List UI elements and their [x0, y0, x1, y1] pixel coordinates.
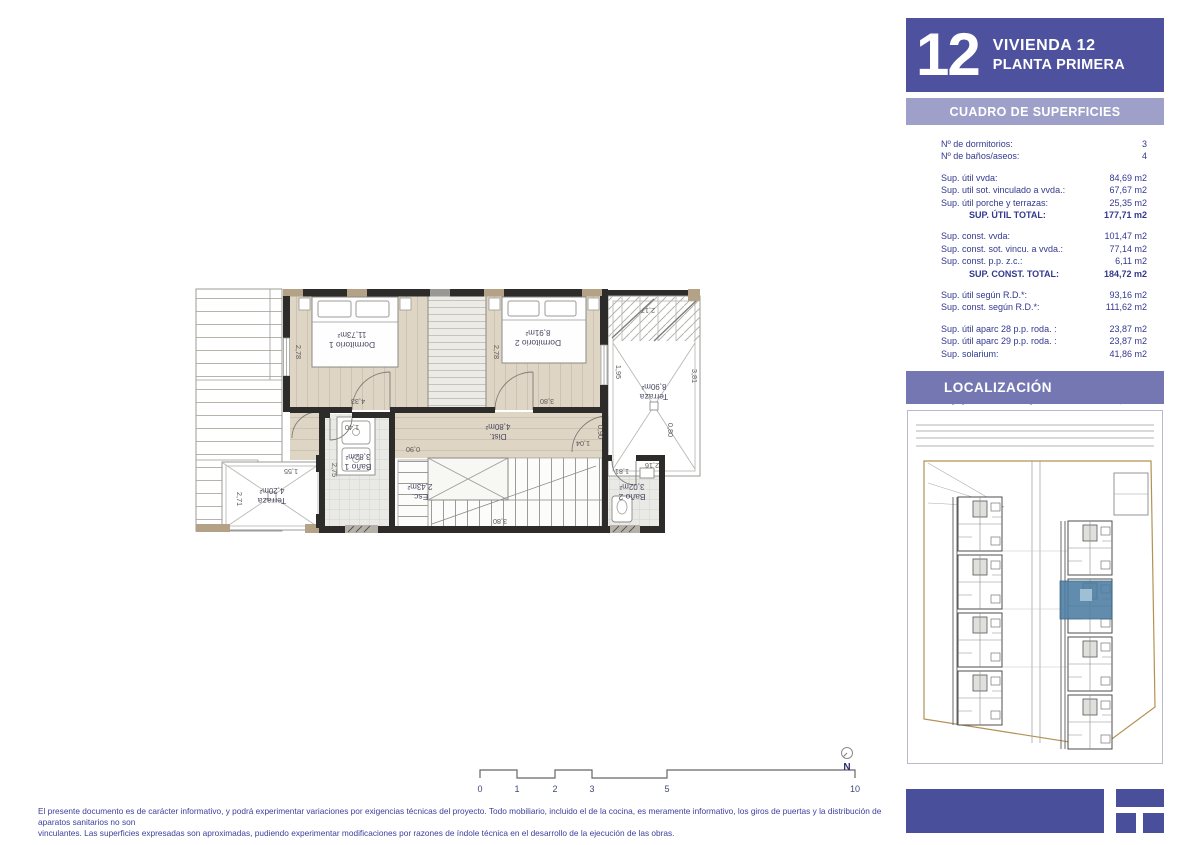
dim-label: 3,80: [493, 517, 507, 526]
svg-text:3,82m²: 3,82m²: [345, 452, 370, 461]
table-row: Sup. útil vvda:84,69 m2: [941, 172, 1147, 184]
unit-header: 12 VIVIENDA 12 PLANTA PRIMERA: [906, 18, 1164, 92]
svg-text:Dormitorio 1: Dormitorio 1: [329, 340, 376, 350]
dim-label: 2,71: [235, 492, 244, 506]
floor-title: PLANTA PRIMERA: [993, 57, 1125, 73]
table-row: Sup. const. vvda:101,47 m2: [941, 230, 1147, 242]
dim-label: 2,78: [492, 345, 501, 359]
svg-text:Terraza: Terraza: [640, 392, 669, 402]
north-icon: N: [835, 742, 861, 778]
dim-label: 0,90: [406, 445, 420, 454]
table-group: Sup. útil aparc 28 p.p. roda. :23,87 m2 …: [941, 323, 1147, 360]
table-row: Nº de baños/aseos:4: [941, 150, 1147, 162]
dim-label: 1,40: [345, 423, 359, 432]
scale-tick-label: 0: [477, 784, 482, 794]
svg-text:4,80m²: 4,80m²: [485, 422, 510, 431]
svg-text:11,73m²: 11,73m²: [337, 330, 366, 339]
unit-title: VIVIENDA 12: [993, 37, 1125, 55]
garage-strip: [950, 497, 958, 725]
svg-text:8,91m²: 8,91m²: [525, 328, 550, 337]
company-logo: [906, 789, 1164, 834]
svg-text:4,20m²: 4,20m²: [259, 486, 284, 495]
svg-text:Esc.: Esc.: [412, 492, 429, 502]
svg-text:Dormitorio 2: Dormitorio 2: [515, 338, 562, 348]
scale-tick-label: 5: [664, 784, 669, 794]
dim-label: 2,17: [641, 306, 655, 315]
table-row: Sup. útil aparc 28 p.p. roda. :23,87 m2: [941, 323, 1147, 335]
dim-label: 2,16: [645, 461, 659, 470]
scale-tick-label: 10: [850, 784, 860, 794]
dim-label: 2,78: [294, 345, 303, 359]
unit-number: 12: [916, 23, 979, 87]
table-row: Sup. const. sot. vincu. a vvda.:77,14 m2: [941, 243, 1147, 255]
table-group: Sup. útil según R.D.*:93,16 m2 Sup. cons…: [941, 289, 1147, 314]
highlighted-unit-12: [1060, 581, 1112, 619]
surfaces-header: CUADRO DE SUPERFICIES: [906, 98, 1164, 125]
dim-label: 3,80: [540, 397, 554, 406]
table-row: Sup. útil según R.D.*:93,16 m2: [941, 289, 1147, 301]
svg-text:2,43m²: 2,43m²: [407, 482, 432, 491]
svg-text:Baño 1: Baño 1: [344, 462, 371, 472]
svg-text:Baño 2: Baño 2: [618, 492, 645, 502]
table-row-total: SUP. CONST. TOTAL:184,72 m2: [941, 268, 1147, 280]
wardrobe: [428, 296, 486, 410]
disclaimer-line: El presente documento es de carácter inf…: [38, 806, 883, 828]
table-row: Sup. solarium:41,86 m2: [941, 348, 1147, 360]
scale-bar: 0 1 2 3 5 10: [470, 738, 870, 800]
scale-tick-label: 2: [552, 784, 557, 794]
dim-label: 1,95: [614, 365, 623, 379]
table-row-total: SUP. ÚTIL TOTAL:177,71 m2: [941, 209, 1147, 221]
logo-bar: [906, 789, 1104, 833]
info-panel: 12 VIVIENDA 12 PLANTA PRIMERA CUADRO DE …: [906, 0, 1164, 845]
dim-label: 1,55: [284, 467, 298, 476]
dim-label: 2,75: [330, 463, 339, 477]
scale-tick-label: 1: [514, 784, 519, 794]
dim-label: 0,80: [666, 423, 675, 437]
logo-block: [1116, 789, 1164, 807]
disclaimer-line: vinculantes. Las superficies expresadas …: [38, 828, 883, 839]
table-row: Sup. const. según R.D.*:111,62 m2: [941, 301, 1147, 313]
table-group: Sup. útil vvda:84,69 m2 Sup. util sot. v…: [941, 172, 1147, 222]
table-row: Sup. útil porche y terrazas:25,35 m2: [941, 197, 1147, 209]
disclaimer: El presente documento es de carácter inf…: [38, 806, 883, 839]
svg-text:8,90m²: 8,90m²: [641, 382, 666, 391]
table-row: Sup. const. p.p. z.c.:6,11 m2: [941, 255, 1147, 267]
porch-floor: [290, 412, 319, 460]
logo-block: [1143, 813, 1164, 833]
north-label: N: [843, 762, 850, 773]
svg-text:Dist.: Dist.: [490, 432, 507, 442]
table-row: Sup. útil aparc 29 p.p. roda. :23,87 m2: [941, 335, 1147, 347]
localization-header: LOCALIZACIÓN: [906, 371, 1164, 404]
site-plan-box: [907, 410, 1163, 764]
logo-block: [1116, 813, 1136, 833]
dim-label: 4,33: [351, 397, 365, 406]
dim-label: 0,90: [596, 425, 605, 439]
svg-text:3,02m²: 3,02m²: [619, 482, 644, 491]
table-group: Nº de dormitorios:3 Nº de baños/aseos:4: [941, 138, 1147, 163]
table-group: Sup. const. vvda:101,47 m2 Sup. const. s…: [941, 230, 1147, 280]
dim-label: 1,04: [576, 439, 590, 448]
site-plan: [908, 411, 1160, 761]
dim-label: 1,81: [615, 467, 629, 476]
svg-text:Terraza: Terraza: [258, 496, 287, 506]
scale-tick-label: 3: [589, 784, 594, 794]
table-row: Nº de dormitorios:3: [941, 138, 1147, 150]
dim-label: 3,81: [690, 369, 699, 383]
floor-plan: Dormitorio 1 11,73m² Dormitorio 2 8,91m²…: [188, 278, 706, 546]
table-row: Sup. util sot. vinculado a vvda.:67,67 m…: [941, 184, 1147, 196]
garage-strip: [1060, 521, 1068, 749]
